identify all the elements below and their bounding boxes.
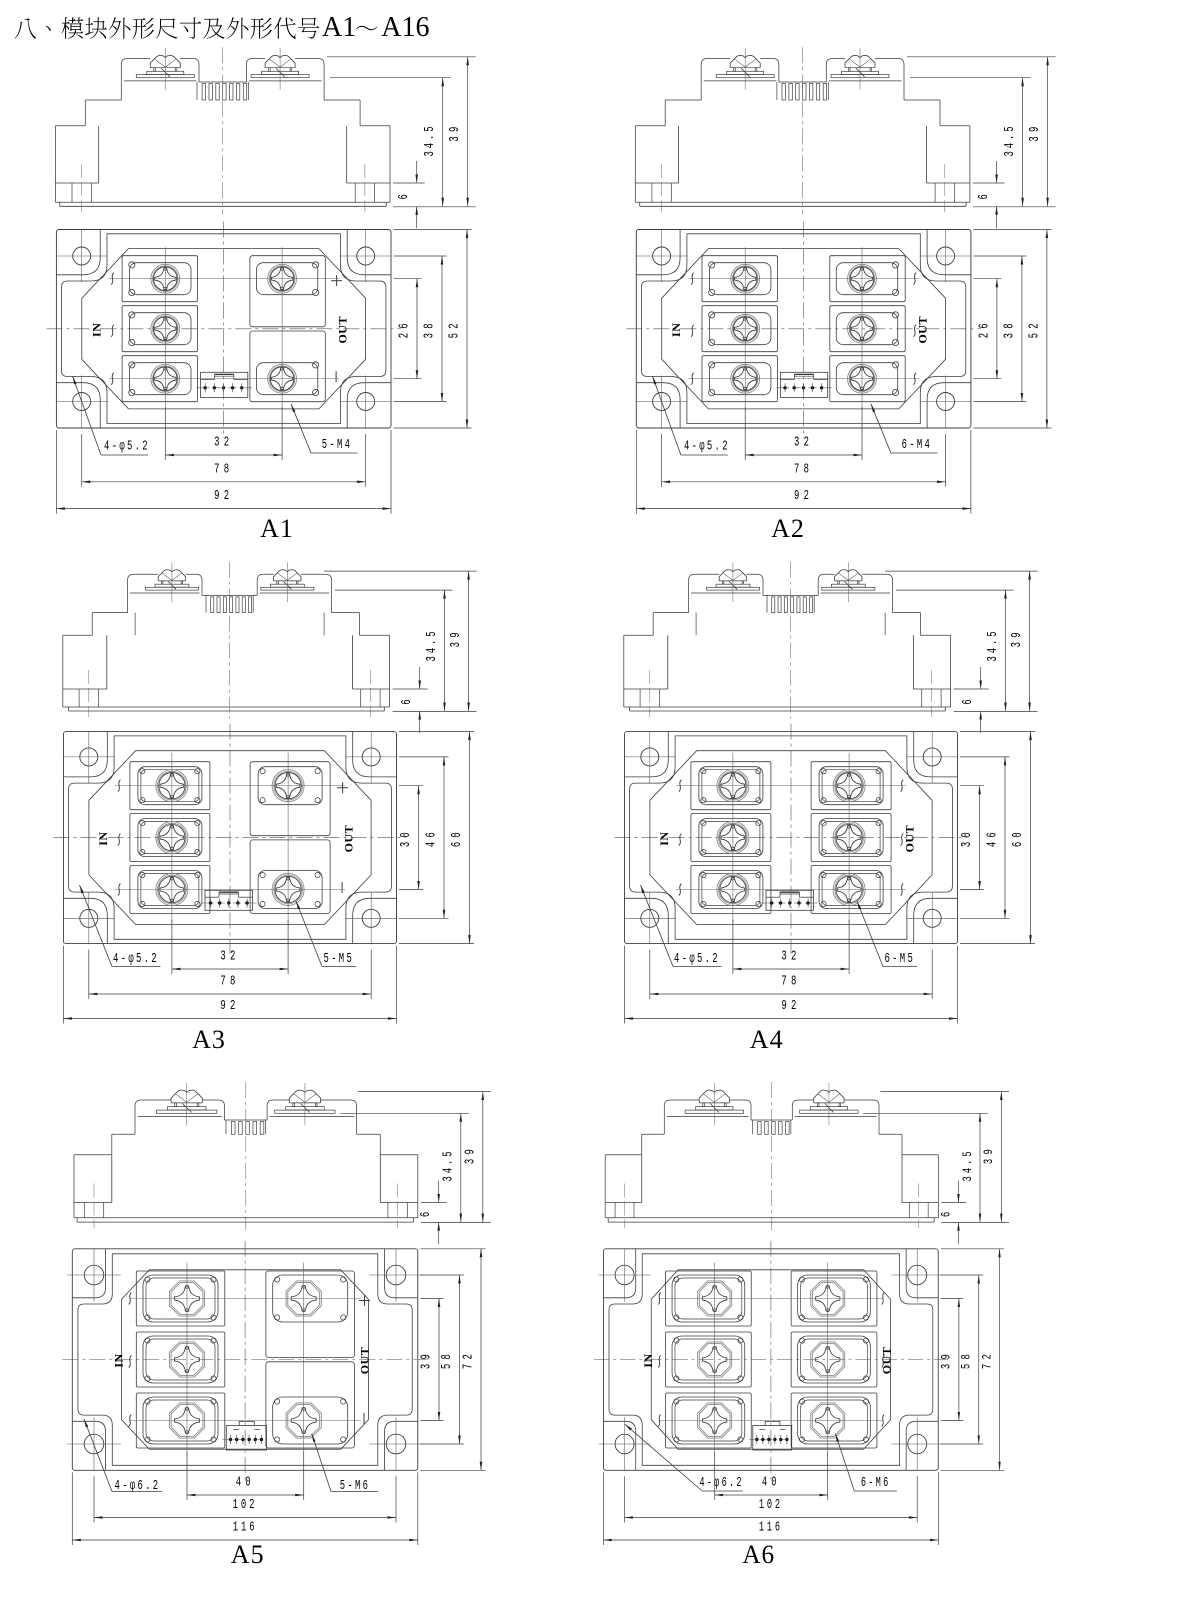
svg-text:40: 40 — [762, 1476, 781, 1490]
svg-text:26: 26 — [977, 319, 992, 338]
svg-text:46: 46 — [424, 828, 439, 847]
svg-text:40: 40 — [236, 1475, 255, 1490]
svg-text:102: 102 — [759, 1498, 783, 1512]
svg-text:A4: A4 — [750, 1025, 784, 1054]
svg-text:6-M6: 6-M6 — [861, 1476, 891, 1490]
svg-text:32: 32 — [214, 435, 233, 450]
svg-text:39: 39 — [1027, 122, 1042, 141]
svg-text:6-M4: 6-M4 — [902, 437, 933, 452]
svg-text:78: 78 — [220, 974, 239, 989]
svg-text:32: 32 — [220, 949, 239, 964]
svg-text:OUT: OUT — [903, 825, 917, 853]
svg-text:A6: A6 — [742, 1540, 775, 1569]
svg-text:A5: A5 — [231, 1540, 265, 1569]
svg-text:39: 39 — [983, 1145, 997, 1164]
svg-text:4-φ5.2: 4-φ5.2 — [113, 951, 159, 966]
svg-text:52: 52 — [447, 319, 462, 338]
svg-text:6: 6 — [940, 1208, 954, 1218]
svg-text:A2: A2 — [771, 514, 805, 543]
svg-text:58: 58 — [439, 1350, 454, 1369]
svg-text:OUT: OUT — [336, 316, 350, 344]
svg-text:32: 32 — [781, 949, 800, 964]
svg-text:92: 92 — [220, 998, 239, 1013]
svg-text:4-φ5.2: 4-φ5.2 — [104, 439, 150, 454]
svg-text:38: 38 — [1002, 319, 1017, 338]
svg-text:A1: A1 — [322, 12, 356, 43]
svg-text:6: 6 — [397, 190, 412, 200]
svg-text:72: 72 — [461, 1350, 476, 1369]
svg-text:32: 32 — [794, 435, 813, 450]
svg-text:IN: IN — [657, 831, 671, 845]
svg-text:39: 39 — [419, 1350, 434, 1369]
svg-text:34.5: 34.5 — [423, 124, 438, 157]
svg-text:IN: IN — [669, 323, 683, 337]
svg-text:IN: IN — [641, 1353, 655, 1367]
svg-text:60: 60 — [1010, 828, 1025, 847]
svg-text:78: 78 — [214, 462, 233, 477]
svg-text:4-φ5.2: 4-φ5.2 — [674, 951, 720, 966]
svg-text:102: 102 — [233, 1497, 258, 1512]
svg-text:39: 39 — [448, 122, 463, 141]
svg-text:6-M5: 6-M5 — [884, 951, 915, 966]
svg-text:34.5: 34.5 — [985, 629, 1000, 662]
svg-text:OUT: OUT — [342, 825, 356, 853]
svg-text:116: 116 — [759, 1521, 783, 1535]
svg-text:60: 60 — [449, 828, 464, 847]
svg-text:6: 6 — [961, 695, 976, 705]
svg-text:39: 39 — [463, 1145, 478, 1164]
svg-text:6: 6 — [419, 1208, 434, 1218]
svg-text:IN: IN — [89, 323, 103, 337]
svg-text:72: 72 — [981, 1350, 995, 1369]
svg-text:4-φ5.2: 4-φ5.2 — [684, 439, 730, 454]
svg-text:30: 30 — [959, 828, 974, 847]
svg-text:OUT: OUT — [880, 1347, 894, 1374]
svg-text:38: 38 — [422, 319, 437, 338]
svg-text:OUT: OUT — [916, 316, 930, 344]
svg-text:4-φ6.2: 4-φ6.2 — [699, 1476, 744, 1490]
svg-text:46: 46 — [985, 828, 1000, 847]
svg-text:58: 58 — [960, 1350, 974, 1369]
svg-text:116: 116 — [233, 1520, 258, 1535]
svg-text:92: 92 — [781, 998, 800, 1013]
svg-text:5-M4: 5-M4 — [322, 437, 353, 452]
svg-text:5-M5: 5-M5 — [323, 951, 354, 966]
svg-text:78: 78 — [781, 974, 800, 989]
svg-text:39: 39 — [940, 1350, 954, 1369]
svg-text:34.5: 34.5 — [961, 1148, 975, 1181]
svg-text:39: 39 — [1009, 628, 1024, 647]
svg-text:39: 39 — [448, 628, 463, 647]
svg-text:34.5: 34.5 — [1002, 124, 1017, 157]
svg-text:26: 26 — [397, 319, 412, 338]
svg-text:A16: A16 — [381, 12, 429, 43]
svg-text:34.5: 34.5 — [424, 629, 439, 662]
svg-text:A3: A3 — [192, 1025, 226, 1054]
svg-text:78: 78 — [794, 462, 813, 477]
svg-text:OUT: OUT — [358, 1347, 372, 1375]
svg-text:92: 92 — [794, 488, 813, 503]
svg-text:A1: A1 — [260, 514, 294, 543]
svg-text:IN: IN — [96, 831, 110, 845]
svg-text:IN: IN — [111, 1353, 125, 1367]
svg-text:6: 6 — [976, 190, 991, 200]
svg-text:52: 52 — [1027, 319, 1042, 338]
svg-text:34.5: 34.5 — [441, 1149, 456, 1182]
svg-text:92: 92 — [214, 488, 233, 503]
svg-text:6: 6 — [400, 695, 415, 705]
svg-text:30: 30 — [398, 828, 413, 847]
